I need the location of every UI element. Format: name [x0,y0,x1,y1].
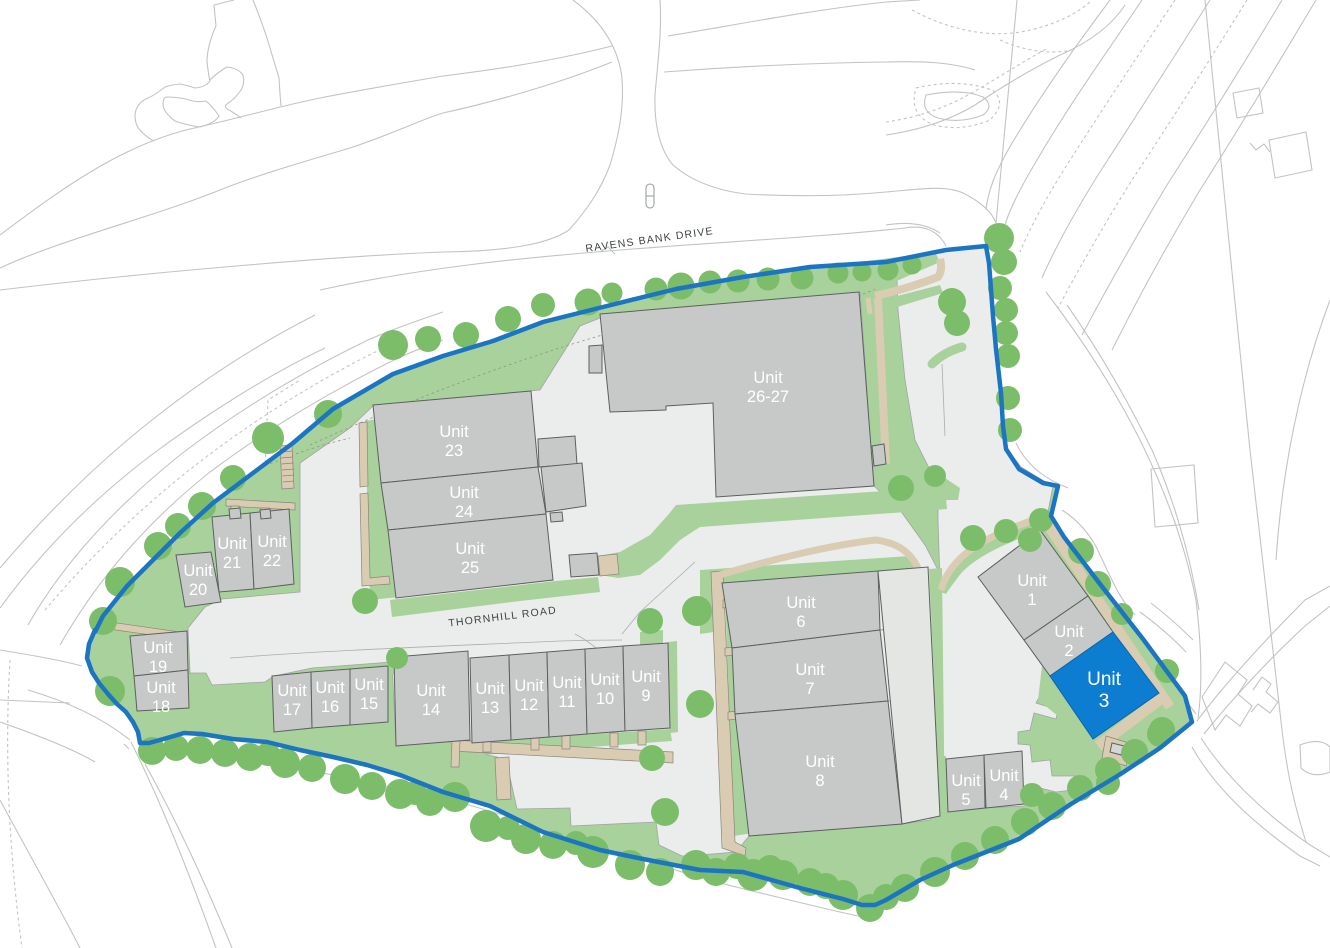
svg-text:Unit: Unit [449,484,479,502]
svg-text:12: 12 [520,696,538,714]
svg-text:10: 10 [596,690,614,708]
svg-text:2: 2 [1064,642,1073,660]
svg-text:Unit: Unit [1054,623,1084,641]
svg-text:Unit: Unit [552,674,582,692]
svg-text:4: 4 [999,786,1008,804]
svg-text:Unit: Unit [951,772,981,790]
svg-text:20: 20 [189,581,207,599]
svg-text:21: 21 [223,554,241,572]
svg-text:Unit: Unit [217,535,247,553]
svg-text:11: 11 [558,693,575,711]
svg-text:18: 18 [152,698,170,716]
svg-text:8: 8 [815,772,824,790]
svg-text:Unit: Unit [439,423,469,441]
svg-text:22: 22 [263,552,281,570]
svg-text:Unit: Unit [315,679,345,697]
svg-text:Unit: Unit [514,677,544,695]
svg-text:Unit: Unit [805,753,835,771]
svg-text:13: 13 [481,699,499,717]
svg-text:16: 16 [321,698,339,716]
svg-text:Unit: Unit [1087,669,1122,690]
svg-text:Unit: Unit [786,594,816,612]
svg-text:17: 17 [283,701,301,719]
svg-text:14: 14 [422,701,440,719]
svg-text:7: 7 [805,680,814,698]
svg-text:Unit: Unit [989,767,1019,785]
svg-text:Unit: Unit [631,668,661,686]
svg-text:19: 19 [149,658,167,676]
svg-text:Unit: Unit [795,661,825,679]
svg-text:9: 9 [641,687,650,705]
svg-text:Unit: Unit [143,639,173,657]
svg-text:Unit: Unit [753,369,783,387]
svg-text:5: 5 [961,791,970,809]
svg-text:1: 1 [1027,591,1036,609]
svg-text:Unit: Unit [354,676,384,694]
svg-text:6: 6 [796,613,805,631]
svg-text:Unit: Unit [475,680,505,698]
svg-text:Unit: Unit [416,682,446,700]
svg-text:24: 24 [455,503,473,521]
svg-text:26-27: 26-27 [747,388,789,406]
svg-text:Unit: Unit [257,533,287,551]
svg-text:Unit: Unit [1017,572,1047,590]
svg-text:Unit: Unit [590,671,620,689]
svg-text:3: 3 [1099,691,1110,712]
svg-text:23: 23 [445,442,463,460]
svg-text:25: 25 [461,559,479,577]
svg-text:Unit: Unit [183,562,213,580]
svg-text:15: 15 [360,695,378,713]
svg-text:Unit: Unit [277,682,307,700]
svg-text:Unit: Unit [455,540,485,558]
svg-text:Unit: Unit [146,679,176,697]
